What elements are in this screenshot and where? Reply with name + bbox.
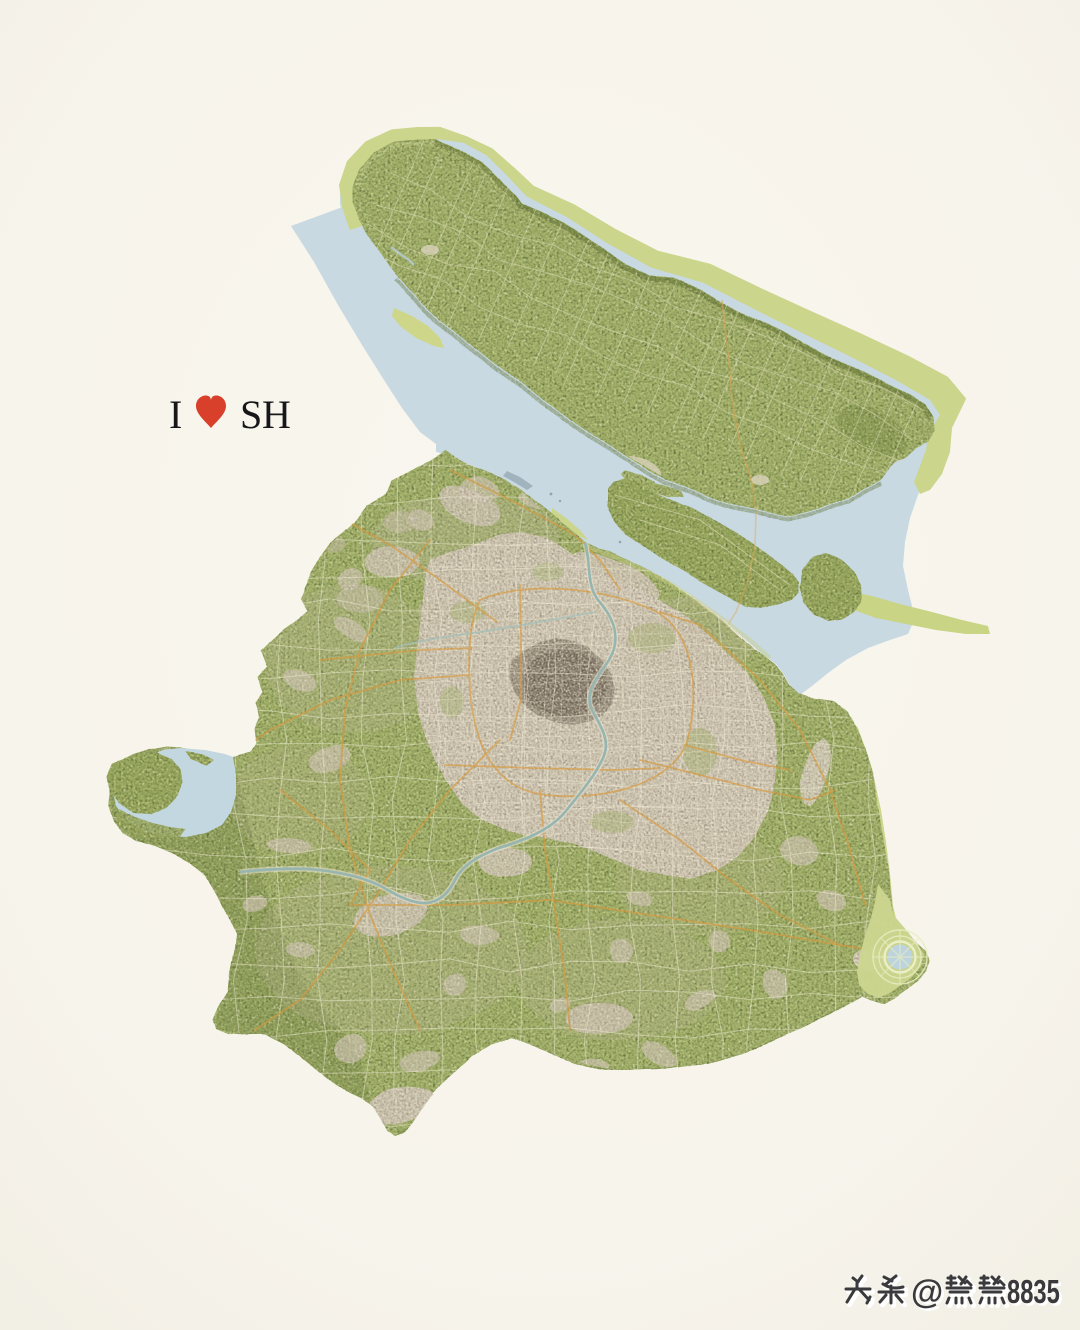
svg-text:S: S <box>240 392 262 437</box>
svg-text:H: H <box>262 392 291 437</box>
svg-text:@: @ <box>911 1273 943 1310</box>
svg-text:8835: 8835 <box>1007 1274 1060 1311</box>
svg-text:I: I <box>169 392 182 437</box>
